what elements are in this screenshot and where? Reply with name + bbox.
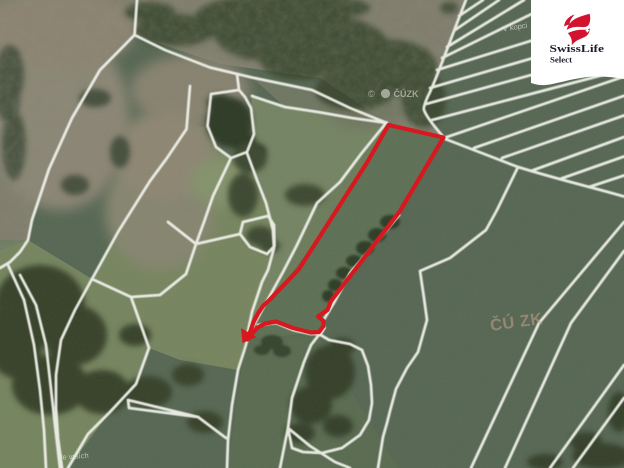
svg-text:Select: Select	[550, 55, 572, 65]
svg-text:SwissLife: SwissLife	[550, 44, 605, 55]
svg-text:©: ©	[368, 89, 375, 99]
svg-text:ČÚZK: ČÚZK	[394, 88, 419, 99]
